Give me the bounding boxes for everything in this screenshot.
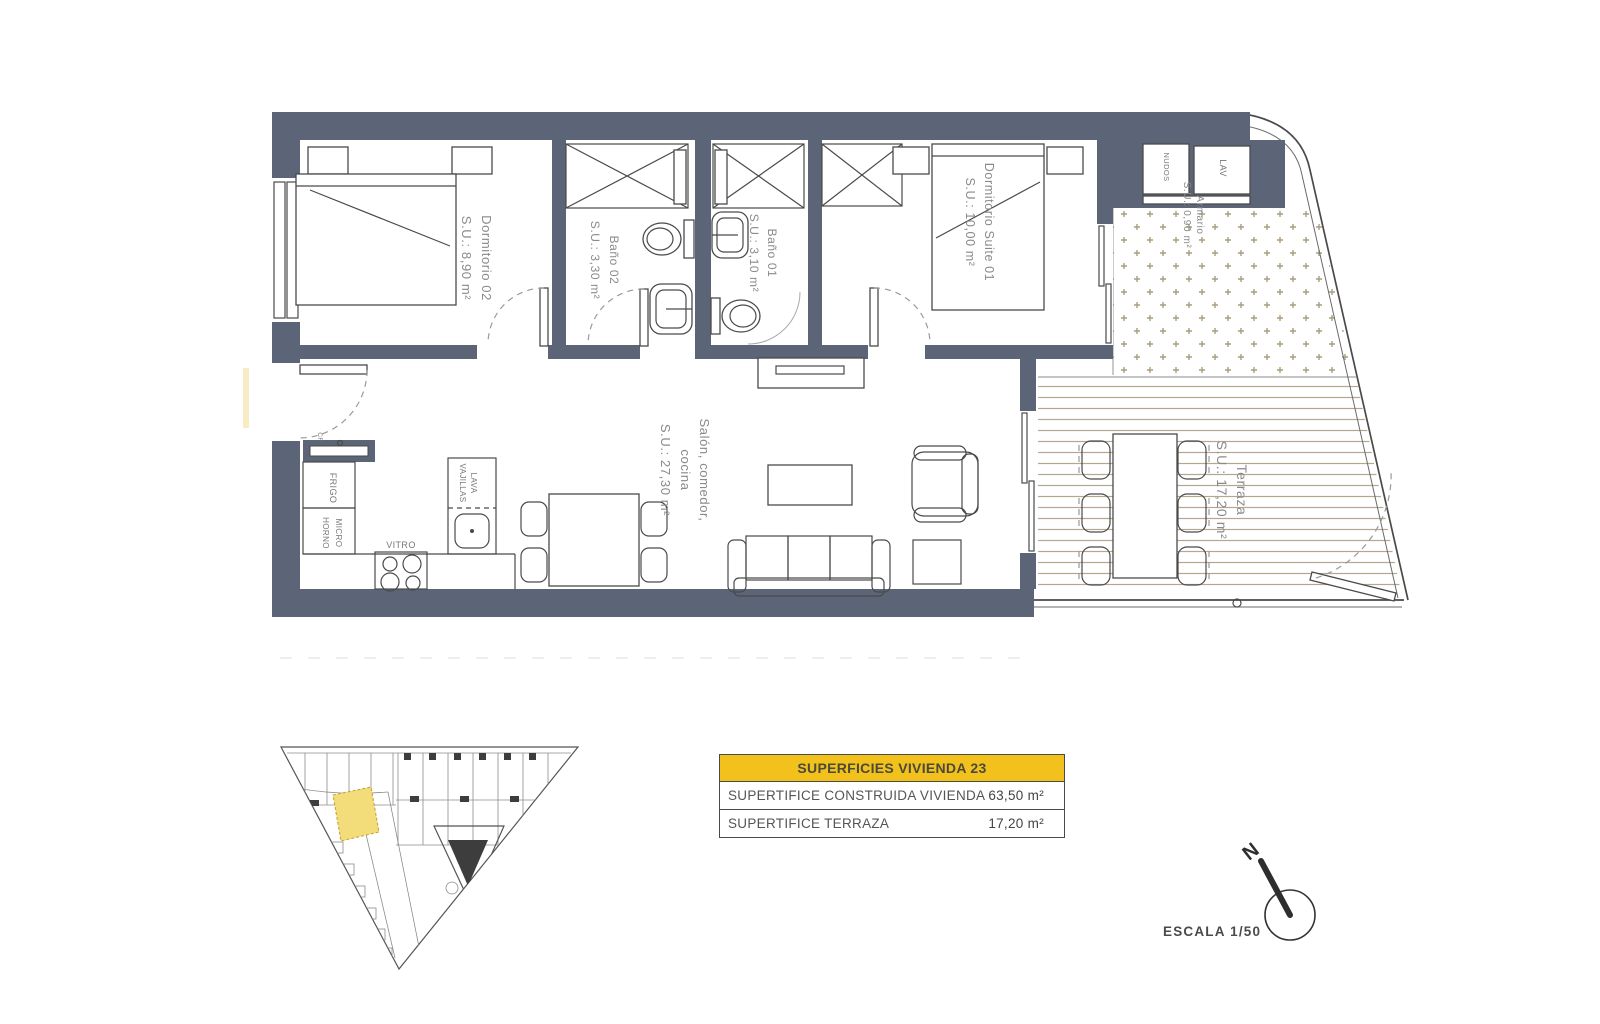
label-lava: LAVA — [469, 473, 478, 494]
dining-table — [521, 494, 667, 586]
label-dormitorio02: Dormitorio 02 — [479, 215, 494, 301]
site-plan-unit-boxes — [318, 842, 392, 958]
armchair — [912, 446, 978, 522]
bathroom02-fixtures — [566, 144, 694, 334]
site-plan-courtyard — [434, 826, 504, 903]
side-table — [913, 540, 961, 584]
label-bano02: Baño 02 — [607, 236, 621, 285]
kitchen — [303, 440, 515, 591]
label-frigo: FRIGO — [328, 473, 338, 504]
label-salon-1: Salón, comedor, — [697, 419, 712, 522]
label-dormitorio02-area: S.U.: 8,90 m² — [459, 216, 474, 300]
summary-row-terraza: SUPERTIFICE TERRAZA 17,20 m² — [720, 810, 1064, 837]
sliding-door-suite — [1097, 224, 1113, 345]
entrance-marker — [243, 368, 249, 428]
sofa — [728, 536, 890, 596]
summary-row-construida-value: 63,50 m² — [988, 782, 1044, 809]
label-vitro: VITRO — [386, 540, 416, 550]
label-bano02-area: S.U.: 3,30 m² — [588, 221, 602, 300]
label-cf: CF — [316, 432, 323, 441]
label-vajillas: VAJILLAS — [458, 463, 467, 502]
floor-plan-drawing: Dormitorio 02 S.U.: 8,90 m² Baño 02 S.U.… — [0, 0, 1600, 1024]
sliding-door-living — [1020, 411, 1036, 553]
floor-plan-page: Dormitorio 02 S.U.: 8,90 m² Baño 02 S.U.… — [0, 0, 1600, 1024]
site-plan-units — [293, 753, 556, 958]
closet-suite — [822, 144, 902, 206]
label-suite: Dormitorio Suite 01 — [982, 163, 996, 281]
site-plan-highlighted-unit — [333, 787, 379, 841]
label-lav: LAV — [1218, 159, 1228, 177]
summary-table-title: SUPERFICIES VIVIENDA 23 — [720, 755, 1064, 782]
label-salon-2: cocina — [678, 449, 693, 490]
site-plan — [281, 747, 578, 969]
label-terraza: Terraza — [1234, 465, 1250, 516]
label-salon-area: S.U.: 27,30 m² — [658, 424, 673, 516]
summary-row-construida-label: SUPERTIFICE CONSTRUIDA VIVIENDA — [728, 782, 985, 809]
summary-row-terraza-value: 17,20 m² — [988, 810, 1044, 837]
label-suite-area: S.U.: 10,00 m² — [963, 178, 977, 267]
label-micro: MICRO — [334, 519, 343, 548]
coffee-table — [768, 465, 852, 505]
label-bano01-area: S.U.: 3,10 m² — [747, 214, 761, 293]
label-nudos: NUDOS — [1162, 152, 1171, 181]
summary-row-terraza-label: SUPERTIFICE TERRAZA — [728, 810, 889, 837]
label-terraza-area: S.U.: 17,20 m² — [1214, 441, 1230, 540]
summary-row-construida: SUPERTIFICE CONSTRUIDA VIVIENDA 63,50 m² — [720, 782, 1064, 810]
tv-cabinet — [758, 358, 864, 388]
label-armario: Armario — [1194, 195, 1205, 234]
label-horno: HORNO — [321, 517, 330, 549]
label-armario-area: S.U.: 0,90 m² — [1181, 182, 1192, 249]
entrance-door — [243, 363, 367, 441]
summary-table: SUPERFICIES VIVIENDA 23 SUPERTIFICE CONS… — [719, 754, 1065, 838]
scale-label: ESCALA 1/50 — [1163, 924, 1261, 939]
label-bano01: Baño 01 — [765, 229, 779, 278]
